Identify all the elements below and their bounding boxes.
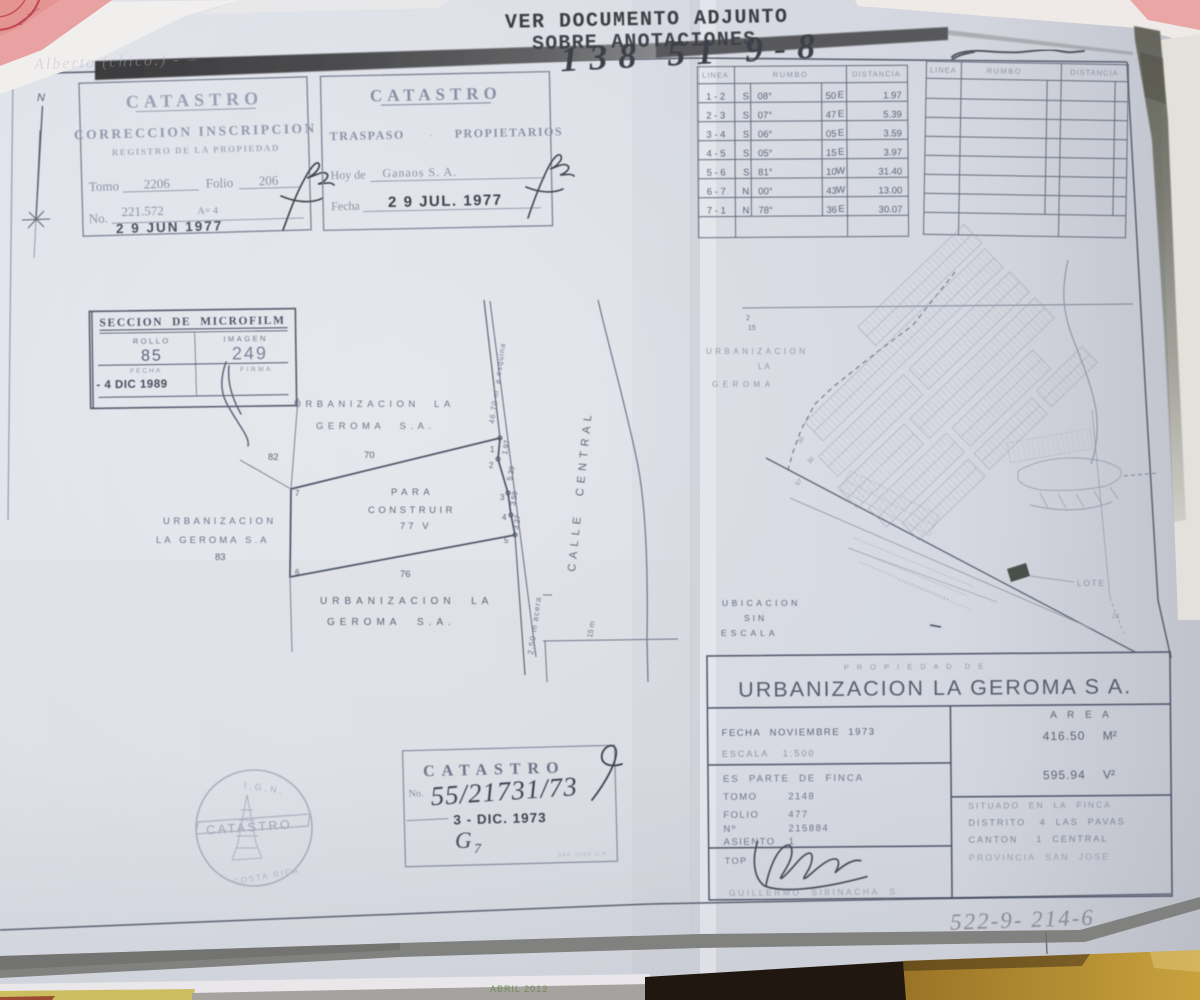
svg-text:URBANIZACION LA GEROMA S A.: URBANIZACION LA GEROMA S A. <box>738 675 1132 701</box>
svg-text:15: 15 <box>748 325 756 332</box>
svg-text:1 - 2: 1 - 2 <box>706 92 725 103</box>
svg-text:4: 4 <box>502 513 507 522</box>
svg-text:G: G <box>455 828 472 853</box>
svg-text:249: 249 <box>232 343 268 364</box>
svg-text:13.00: 13.00 <box>878 185 902 196</box>
svg-text:S: S <box>743 91 749 102</box>
svg-text:S: S <box>743 110 749 121</box>
svg-text:A= 4: A= 4 <box>197 205 218 217</box>
svg-text:P R O P I E D A D D E: P R O P I E D A D D E <box>844 662 986 672</box>
svg-text:ESCALA: ESCALA <box>721 628 779 638</box>
svg-text:URBANIZACION: URBANIZACION <box>163 516 277 527</box>
svg-text:77 V: 77 V <box>400 521 432 532</box>
svg-text:N: N <box>37 92 45 104</box>
svg-text:6 - 7: 6 - 7 <box>707 187 726 198</box>
svg-text:TOP: TOP <box>725 856 748 866</box>
svg-text:W: W <box>836 185 845 196</box>
svg-text:78°: 78° <box>758 205 773 216</box>
svg-text:1: 1 <box>490 445 495 454</box>
svg-text:GEROMA: GEROMA <box>712 380 775 389</box>
svg-text:S: S <box>743 167 749 178</box>
svg-text:85: 85 <box>141 347 163 364</box>
svg-text:GEROMA S.A.: GEROMA S.A. <box>316 421 435 432</box>
svg-text:ASIENTO: ASIENTO <box>724 836 776 847</box>
svg-text:SIN: SIN <box>744 613 767 623</box>
svg-text:82: 82 <box>268 452 279 463</box>
svg-text:CATASTRO: CATASTRO <box>370 84 502 106</box>
svg-text:S: S <box>743 148 749 159</box>
svg-text:FECHA: FECHA <box>130 367 162 374</box>
svg-text:E: E <box>838 147 844 158</box>
svg-text:DISTANCIA: DISTANCIA <box>1070 68 1119 78</box>
svg-text:- 4 DIC 1989: - 4 DIC 1989 <box>96 378 167 391</box>
svg-text:00°: 00° <box>758 186 773 197</box>
svg-text:6: 6 <box>295 568 300 577</box>
svg-text:ES PARTE DE FINCA: ES PARTE DE FINCA <box>723 773 864 785</box>
svg-text:RUMBO: RUMBO <box>773 70 808 79</box>
svg-text:DISTANCIA: DISTANCIA <box>852 69 901 78</box>
svg-text:Folio: Folio <box>206 175 234 191</box>
svg-text:2206: 2206 <box>144 176 171 192</box>
svg-text:LA GEROMA S.A: LA GEROMA S.A <box>156 535 269 546</box>
svg-text:05°: 05° <box>758 148 773 159</box>
svg-text:ROLLO: ROLLO <box>133 336 171 346</box>
svg-text:LINEA: LINEA <box>702 70 729 79</box>
svg-text:No.: No. <box>89 210 109 226</box>
svg-text:23: 23 <box>1112 613 1120 620</box>
svg-text:LINEA: LINEA <box>930 65 957 74</box>
svg-text:UBICACION: UBICACION <box>722 598 801 608</box>
svg-text:FIRMA: FIRMA <box>240 366 273 373</box>
svg-text:LOTE: LOTE <box>1077 579 1106 588</box>
svg-text:PROVINCIA SAN JOSE: PROVINCIA SAN JOSE <box>969 852 1111 863</box>
svg-text:7 - 1: 7 - 1 <box>707 206 726 217</box>
svg-text:E: E <box>838 204 844 215</box>
svg-text:15: 15 <box>826 148 837 159</box>
svg-text:Nº: Nº <box>723 824 736 835</box>
svg-text:81°: 81° <box>758 167 773 178</box>
svg-text:2 9 JUL. 1977: 2 9 JUL. 1977 <box>388 192 503 211</box>
svg-text:ESCALA 1:500: ESCALA 1:500 <box>722 748 816 759</box>
svg-text:.: . <box>430 128 432 138</box>
svg-text:GEROMA S.A.: GEROMA S.A. <box>327 617 456 628</box>
svg-text:Hoy de: Hoy de <box>330 168 365 183</box>
svg-text:S: S <box>743 129 749 140</box>
svg-text:2 9 JUN 1977: 2 9 JUN 1977 <box>116 218 224 236</box>
svg-text:E: E <box>838 128 844 139</box>
svg-text:TRASPASO: TRASPASO <box>330 128 405 144</box>
svg-text:E: E <box>838 109 844 120</box>
svg-text:LA: LA <box>758 362 772 371</box>
svg-text:N: N <box>742 186 749 197</box>
svg-text:595.94: 595.94 <box>1043 768 1086 782</box>
svg-text:70: 70 <box>364 450 375 461</box>
svg-text:36: 36 <box>826 205 837 216</box>
svg-text:W: W <box>836 166 845 177</box>
svg-text:DISTRITO 4 LAS PAVAS: DISTRITO 4 LAS PAVAS <box>968 816 1125 827</box>
svg-text:PROPIETARIOS: PROPIETARIOS <box>455 124 564 140</box>
svg-text:5.39: 5.39 <box>883 109 902 120</box>
svg-text:RUMBO: RUMBO <box>987 66 1023 76</box>
svg-text:2 - 3: 2 - 3 <box>706 111 725 122</box>
svg-text:V²: V² <box>1103 767 1115 781</box>
svg-text:5: 5 <box>504 536 509 545</box>
svg-text:05: 05 <box>826 129 837 140</box>
svg-text:3.97: 3.97 <box>883 147 902 158</box>
svg-text:FOLIO: FOLIO <box>723 810 759 821</box>
svg-text:N: N <box>742 205 749 216</box>
svg-text:221.572: 221.572 <box>121 203 164 219</box>
svg-text:3.59: 3.59 <box>883 128 902 139</box>
svg-text:08°: 08° <box>758 91 773 102</box>
svg-text:206: 206 <box>259 173 279 189</box>
svg-text:4 - 5: 4 - 5 <box>706 149 725 160</box>
svg-text:3 - DIC. 1973: 3 - DIC. 1973 <box>453 810 547 827</box>
svg-text:83: 83 <box>215 552 226 563</box>
svg-text:47: 47 <box>826 110 837 121</box>
svg-text:Tomo: Tomo <box>89 178 120 194</box>
svg-text:7: 7 <box>295 489 300 498</box>
svg-text:2: 2 <box>489 461 494 470</box>
svg-text:No.: No. <box>409 788 424 799</box>
svg-text:477: 477 <box>788 809 808 820</box>
svg-text:PARA: PARA <box>391 487 434 498</box>
svg-text:CONSTRUIR: CONSTRUIR <box>368 505 456 516</box>
svg-text:Fecha: Fecha <box>331 199 361 214</box>
svg-text:30.07: 30.07 <box>879 204 903 215</box>
svg-text:URBANIZACION LA: URBANIZACION LA <box>320 596 493 607</box>
svg-text:215884: 215884 <box>788 823 829 834</box>
svg-text:31.40: 31.40 <box>878 166 902 177</box>
svg-text:Ganaos S. A.: Ganaos S. A. <box>382 165 457 181</box>
svg-text:3 - 4: 3 - 4 <box>706 130 725 141</box>
svg-text:URBANIZACION LA: URBANIZACION LA <box>294 399 455 410</box>
svg-text:2: 2 <box>746 315 750 322</box>
svg-text:7: 7 <box>474 842 482 857</box>
svg-text:TOMO: TOMO <box>723 792 757 803</box>
svg-text:07°: 07° <box>758 110 773 121</box>
svg-text:416.50: 416.50 <box>1043 729 1086 743</box>
svg-text:SITUADO EN LA FINCA: SITUADO EN LA FINCA <box>968 800 1112 811</box>
svg-text:50: 50 <box>826 91 837 102</box>
svg-text:3: 3 <box>500 493 505 502</box>
svg-text:1.97: 1.97 <box>883 90 902 101</box>
svg-text:A R E A: A R E A <box>1050 709 1113 721</box>
svg-text:FECHA NOVIEMBRE 1973: FECHA NOVIEMBRE 1973 <box>722 727 876 739</box>
svg-text:76: 76 <box>400 569 411 580</box>
svg-text:M²: M² <box>1103 728 1117 742</box>
svg-text:5 - 6: 5 - 6 <box>707 168 726 179</box>
svg-text:2148: 2148 <box>788 791 815 802</box>
svg-text:ABRIL 2012: ABRIL 2012 <box>490 984 548 994</box>
svg-text:CANTON 1 CENTRAL: CANTON 1 CENTRAL <box>969 834 1109 845</box>
svg-text:06°: 06° <box>758 129 773 140</box>
svg-text:URBANIZACION: URBANIZACION <box>706 347 808 356</box>
svg-text:E: E <box>838 90 844 101</box>
